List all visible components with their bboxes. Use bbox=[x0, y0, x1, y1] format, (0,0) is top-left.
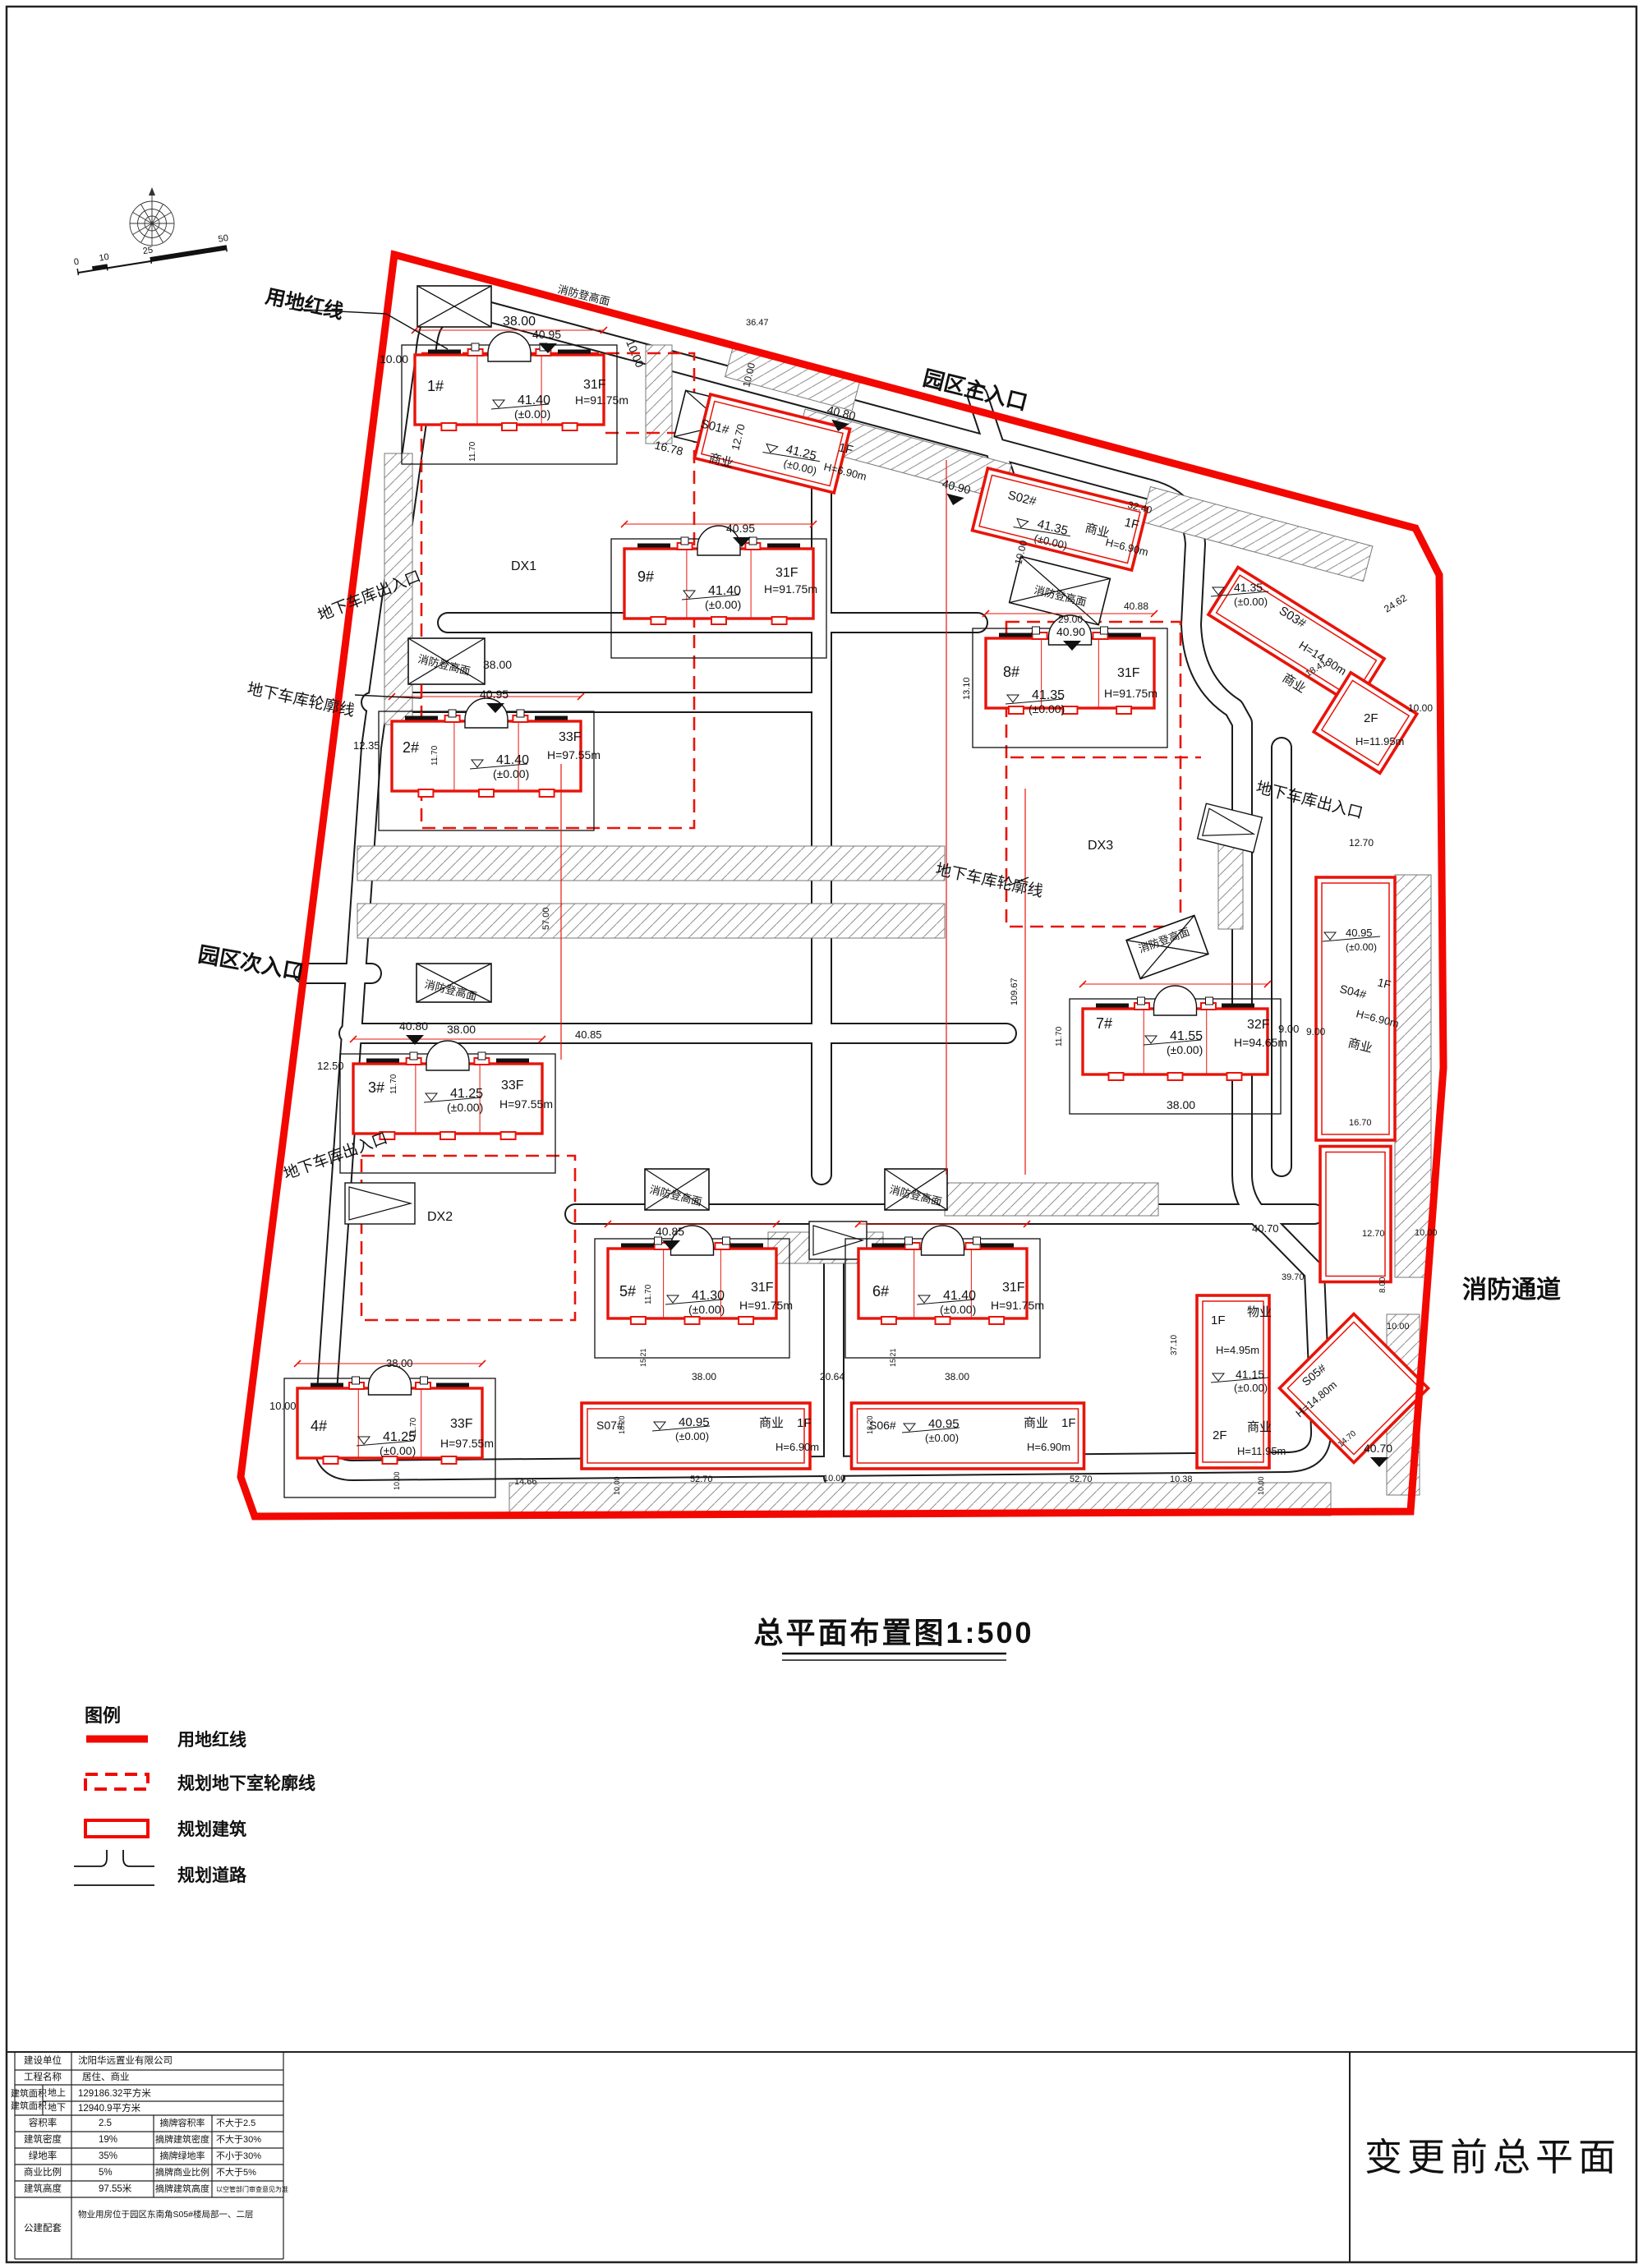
plan-annotation: 11.70 bbox=[1055, 1026, 1064, 1047]
plan-annotation: 9# bbox=[637, 568, 654, 585]
plan-annotation: 10.00 bbox=[269, 1400, 297, 1412]
plan-annotation: 3# bbox=[368, 1079, 384, 1096]
plan-annotation: 38.00 bbox=[1167, 1098, 1195, 1111]
plan-annotation: 10.00 bbox=[823, 1474, 846, 1484]
plan-annotation: (±0.00) bbox=[1234, 596, 1268, 608]
plan-annotation: H=11.95m bbox=[1355, 735, 1404, 748]
table-cell: 绿地率 bbox=[29, 2150, 58, 2161]
plan-annotation: 40.70 bbox=[1364, 1442, 1392, 1455]
plan-label: 商业 bbox=[1247, 1420, 1272, 1434]
drawing-title-text: 总平面布置图1:500 bbox=[753, 1616, 1033, 1649]
plan-annotation: 1# bbox=[427, 378, 444, 394]
table-cell: 公建配套 bbox=[24, 2222, 62, 2233]
plan-annotation: (±0.00) bbox=[1234, 1382, 1268, 1394]
parking-strip bbox=[357, 846, 945, 881]
plan-annotation: (±0.00) bbox=[1167, 1043, 1203, 1056]
parking-strip bbox=[646, 345, 672, 444]
plan-annotation: 38.00 bbox=[692, 1371, 716, 1382]
plan-annotation: 18.20 bbox=[866, 1415, 874, 1434]
plan-annotation: 38.00 bbox=[386, 1357, 413, 1369]
plan-annotation: 8.00 bbox=[1378, 1277, 1388, 1293]
plan-label: 消防通道 bbox=[1462, 1277, 1561, 1304]
garage-ramp bbox=[345, 1183, 415, 1224]
table-cell: 不大于5% bbox=[216, 2166, 256, 2178]
plan-annotation: 10.00 bbox=[380, 352, 408, 366]
plan-annotation: 4# bbox=[311, 1418, 327, 1434]
table-cell: 摘牌商业比例 bbox=[155, 2166, 209, 2178]
plan-annotation: H=4.95m bbox=[1216, 1344, 1259, 1356]
table-cell: 商业比例 bbox=[24, 2166, 62, 2178]
plan-annotation: H=91.75m bbox=[764, 582, 817, 596]
plan-annotation: H=6.90m bbox=[775, 1441, 819, 1453]
plan-annotation: 11.70 bbox=[409, 1417, 418, 1438]
plan-annotation: 10.00 bbox=[613, 1476, 621, 1495]
plan-annotation: 109.67 bbox=[1010, 978, 1019, 1005]
plan-annotation: (±0.00) bbox=[940, 1303, 976, 1316]
plan-annotation: 10.00 bbox=[393, 1471, 401, 1490]
table-cell: 物业用房位于园区东南角S05#楼局部一、二层 bbox=[78, 2209, 254, 2220]
plan-annotation: H=91.75m bbox=[991, 1299, 1044, 1312]
plan-annotation: 11.70 bbox=[468, 441, 477, 462]
plan-annotation: 10.00 bbox=[1408, 702, 1433, 714]
plan-annotation: 11.70 bbox=[644, 1284, 653, 1304]
plan-annotation: (±0.00) bbox=[925, 1432, 959, 1444]
table-cell: 12940.9平方米 bbox=[78, 2102, 141, 2114]
plan-annotation: 6# bbox=[872, 1283, 889, 1300]
plan-annotation: 33F bbox=[450, 1417, 473, 1431]
table-cell: 5% bbox=[99, 2168, 113, 2178]
parking-strip bbox=[945, 1183, 1158, 1216]
plan-label: 物业 bbox=[1247, 1305, 1272, 1319]
drawing-title: 总平面布置图1:500 bbox=[753, 1616, 1033, 1660]
plan-annotation: 12.35 bbox=[353, 739, 380, 752]
table-cell: 摘牌建筑高度 bbox=[155, 2183, 209, 2194]
plan-annotation: 7# bbox=[1096, 1015, 1112, 1032]
table-cell: 建筑高度 bbox=[24, 2183, 62, 2194]
table-cell: 建筑面积 bbox=[11, 2100, 47, 2111]
plan-annotation: 40.90 bbox=[1056, 625, 1085, 638]
plan-annotation: DX1 bbox=[511, 559, 536, 573]
legend-label-redline: 用地红线 bbox=[177, 1730, 246, 1750]
plan-annotation: DX3 bbox=[1088, 839, 1113, 853]
table-cell: 摘牌容积率 bbox=[160, 2117, 205, 2128]
plan-label: 商业 bbox=[1024, 1416, 1048, 1430]
plan-annotation: 38.00 bbox=[945, 1371, 969, 1382]
plan-annotation: 2F bbox=[1213, 1428, 1227, 1442]
plan-annotation: 14.66 bbox=[514, 1477, 537, 1487]
plan-annotation: (±0.00) bbox=[380, 1444, 416, 1457]
plan-annotation: 40.70 bbox=[1252, 1222, 1279, 1235]
table-cell: 19% bbox=[99, 2135, 117, 2145]
table-cell: 居住、商业 bbox=[82, 2071, 130, 2082]
plan-annotation: 12.70 bbox=[1349, 837, 1374, 849]
plan-annotation: 52.70 bbox=[690, 1474, 713, 1484]
sheet-name: 变更前总平面 bbox=[1365, 2137, 1621, 2178]
plan-annotation: 33F bbox=[559, 730, 582, 744]
plan-annotation: 12.50 bbox=[317, 1060, 344, 1072]
plan-annotation: 40.85 bbox=[575, 1028, 602, 1041]
plan-annotation: 40.95 bbox=[532, 328, 561, 341]
plan-annotation: H=6.90m bbox=[1027, 1441, 1070, 1453]
table-cell: 地上 bbox=[48, 2087, 66, 2098]
table-cell: 沈阳华远置业有限公司 bbox=[78, 2054, 173, 2066]
table-cell: 容积率 bbox=[29, 2117, 58, 2128]
plan-annotation: 31F bbox=[751, 1281, 774, 1295]
plan-annotation: 5# bbox=[619, 1283, 636, 1300]
plan-annotation: 11.70 bbox=[430, 745, 440, 766]
plan-annotation: (±0.00) bbox=[688, 1303, 725, 1316]
commercial-building bbox=[1316, 877, 1395, 1140]
plan-annotation: 40.95 bbox=[726, 522, 755, 535]
plan-annotation: 36.47 bbox=[746, 318, 769, 328]
scale-label-50: 50 bbox=[218, 233, 229, 245]
plan-annotation: 52.70 bbox=[1070, 1474, 1093, 1484]
plan-annotation: 31F bbox=[1002, 1281, 1025, 1295]
plan-annotation: 38.00 bbox=[483, 658, 512, 671]
plan-annotation: 40.88 bbox=[1124, 600, 1148, 612]
plan-annotation: 39.70 bbox=[1282, 1272, 1305, 1282]
plan-annotation: 1F bbox=[1211, 1313, 1226, 1327]
plan-annotation: 31F bbox=[583, 378, 606, 392]
plan-annotation: 38.00 bbox=[503, 315, 536, 329]
plan-annotation: 9.00 bbox=[1278, 1023, 1299, 1035]
table-cell: 地下 bbox=[48, 2102, 66, 2113]
plan-annotation: (±0.00) bbox=[493, 767, 529, 780]
plan-annotation: 29.00 bbox=[1058, 614, 1083, 625]
plan-annotation: DX2 bbox=[427, 1210, 453, 1224]
plan-annotation: 10.00 bbox=[1257, 1476, 1265, 1495]
parking-strip bbox=[1395, 875, 1431, 1277]
plan-annotation: 40.95 bbox=[480, 688, 509, 701]
table-cell: 2.5 bbox=[99, 2118, 112, 2128]
plan-annotation: 2# bbox=[403, 739, 419, 756]
plan-annotation: 10.00 bbox=[1387, 1322, 1410, 1332]
plan-annotation: 1F bbox=[1061, 1416, 1076, 1430]
plan-annotation: 10.38 bbox=[1170, 1474, 1193, 1484]
plan-annotation: 20.64 bbox=[820, 1371, 845, 1382]
plan-annotation: 16.70 bbox=[1349, 1118, 1372, 1128]
table-cell: 不小于30% bbox=[216, 2151, 261, 2161]
parking-strip bbox=[357, 904, 945, 938]
table-cell: 工程名称 bbox=[24, 2071, 62, 2082]
plan-annotation: 2F bbox=[1364, 711, 1378, 725]
table-cell: 摘牌建筑密度 bbox=[155, 2133, 209, 2145]
plan-annotation: (±0.00) bbox=[1029, 702, 1065, 715]
commercial-building bbox=[1320, 1147, 1391, 1282]
table-cell: 建设单位 bbox=[24, 2054, 62, 2066]
table-cell: 129186.32平方米 bbox=[78, 2087, 151, 2099]
plan-annotation: 8# bbox=[1003, 664, 1019, 680]
plan-annotation: (±0.00) bbox=[514, 407, 550, 421]
plan-annotation: 57.00 bbox=[541, 907, 551, 930]
legend-title: 图例 bbox=[85, 1705, 121, 1726]
plan-label: 商业 bbox=[759, 1416, 784, 1430]
plan-annotation: H=97.55m bbox=[547, 748, 601, 761]
table-cell: 建筑密度 bbox=[24, 2133, 62, 2145]
table-cell: 建筑面积 bbox=[11, 2087, 47, 2099]
plan-annotation: 10.00 bbox=[1415, 1228, 1438, 1238]
plan-annotation: H=91.75m bbox=[1104, 687, 1157, 700]
fire-rescue-pad bbox=[417, 286, 491, 327]
site-plan-svg: 用地红线10.0038.0010.0040.9536.4716.78消防登高面1… bbox=[0, 0, 1643, 2268]
plan-annotation: 33F bbox=[501, 1079, 524, 1093]
legend-label-building: 规划建筑 bbox=[177, 1819, 246, 1839]
plan-annotation: H=97.55m bbox=[440, 1437, 494, 1450]
legend-label-road: 规划道路 bbox=[177, 1865, 247, 1885]
plan-annotation: 18.20 bbox=[618, 1415, 626, 1434]
table-cell: 不大于2.5 bbox=[216, 2117, 255, 2128]
scale-label-25: 25 bbox=[142, 245, 154, 256]
plan-annotation: 38.00 bbox=[447, 1023, 476, 1036]
plan-annotation: (±0.00) bbox=[1346, 941, 1377, 953]
table-cell: 摘牌绿地率 bbox=[160, 2150, 205, 2161]
table-cell: 不大于30% bbox=[216, 2133, 261, 2145]
plan-annotation: (±0.00) bbox=[675, 1430, 709, 1442]
plan-annotation: 37.10 bbox=[1170, 1335, 1179, 1355]
plan-annotation: 1F bbox=[797, 1416, 812, 1430]
plan-annotation: 32F bbox=[1247, 1018, 1270, 1032]
plan-annotation: 11.70 bbox=[389, 1074, 398, 1094]
drawing-sheet: 用地红线10.0038.0010.0040.9536.4716.78消防登高面1… bbox=[0, 0, 1643, 2268]
commercial-building bbox=[852, 1403, 1084, 1469]
table-cell: 以空管部门审查意见为准 bbox=[216, 2185, 288, 2193]
plan-annotation: 13.10 bbox=[962, 677, 972, 700]
plan-annotation: 31F bbox=[775, 566, 798, 580]
plan-annotation: H=97.55m bbox=[499, 1097, 553, 1111]
plan-annotation: (±0.00) bbox=[705, 598, 741, 611]
plan-annotation: 9.00 bbox=[1306, 1026, 1326, 1037]
plan-annotation: H=11.95m bbox=[1237, 1445, 1286, 1457]
table-cell: 97.55米 bbox=[99, 2183, 132, 2194]
plan-annotation: H=91.75m bbox=[575, 393, 628, 407]
scale-label-10: 10 bbox=[99, 252, 110, 264]
legend-label-basement: 规划地下室轮廓线 bbox=[177, 1773, 315, 1793]
plan-annotation: 40.80 bbox=[399, 1019, 428, 1033]
plan-annotation: H=91.75m bbox=[739, 1299, 793, 1312]
plan-annotation: 15.21 bbox=[639, 1348, 647, 1367]
plan-annotation: 40.85 bbox=[656, 1225, 684, 1238]
table-cell: 35% bbox=[99, 2151, 117, 2161]
plan-annotation: H=94.65m bbox=[1234, 1036, 1287, 1049]
plan-annotation: 31F bbox=[1117, 666, 1140, 680]
plan-annotation: (±0.00) bbox=[447, 1101, 483, 1114]
plan-annotation: 15.21 bbox=[889, 1348, 897, 1367]
plan-annotation: 12.70 bbox=[1362, 1229, 1385, 1239]
